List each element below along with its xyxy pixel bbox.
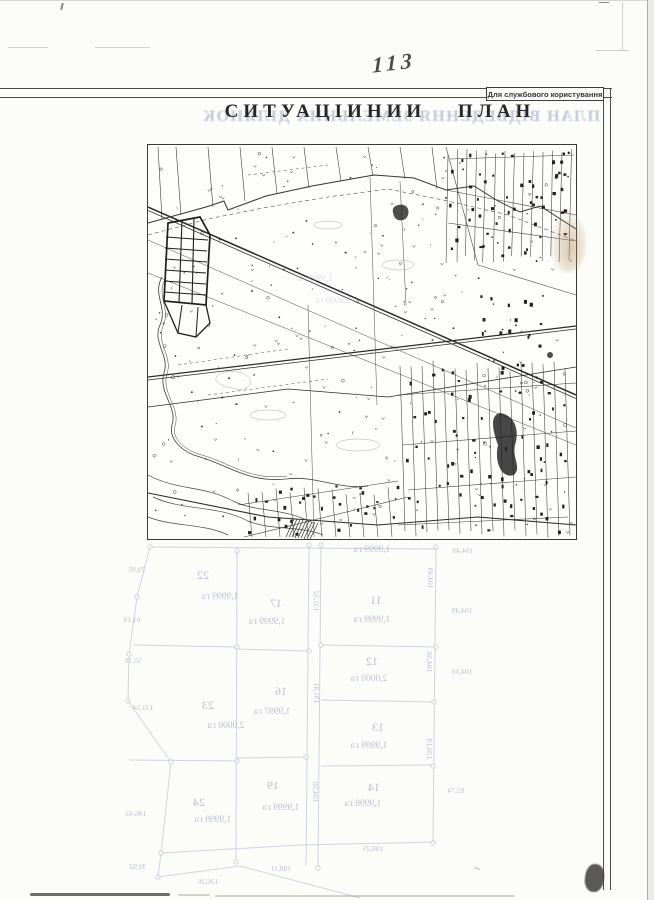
- page-title: СИТУАЦІИНИИ ПЛАН: [180, 101, 580, 123]
- map-canvas: [148, 145, 576, 539]
- pond: [493, 413, 517, 476]
- bleed-parcel-number: 22: [197, 568, 209, 582]
- classification-stamp: Для службового користування: [486, 87, 604, 101]
- bleed-parcel-number: 24: [193, 795, 205, 809]
- bleed-measurement: 104,50: [451, 667, 472, 676]
- scan-speck: [599, 2, 609, 3]
- bleed-parcel-area: 1,9999 га: [201, 592, 238, 602]
- page-frame-outer: [610, 88, 611, 890]
- bleed-parcel-area: 1,9999 га: [248, 617, 285, 627]
- bleed-measurement: 104,49: [426, 567, 435, 588]
- bleed-measurement: 120,19: [425, 738, 434, 759]
- bleed-parcel-number: 13: [372, 720, 384, 734]
- bleed-parcel-number: 19: [267, 778, 279, 792]
- scanned-document-page: ПЛАН ВІДВЕДЕННЯ ЗЕМЕЛЬНИХ ДІЛЯНОК 221,99…: [0, 0, 654, 900]
- bleed-parcel-area: 1,9999 га: [350, 741, 387, 751]
- scan-bottom-smudge: [178, 894, 210, 896]
- scan-top-edge: [0, 0, 654, 1]
- bleed-parcel-area: 1,9998 га: [344, 799, 381, 809]
- situational-map: 1,9999 га 2,0000 га: [147, 144, 577, 540]
- bleed-measurement: 104,49: [451, 606, 472, 615]
- bleed-measurement: 131,54: [132, 703, 153, 712]
- scan-artifact-line: [596, 50, 629, 51]
- bleed-measurement: 126,26: [197, 877, 218, 886]
- bleed-parcel-number: 12: [366, 654, 378, 668]
- scan-page-edge: [647, 0, 654, 900]
- bleed-measurement: 61,19: [123, 615, 140, 624]
- bleed-parcel-number: 11: [370, 593, 382, 607]
- bleed-measurement: 55,10: [124, 656, 141, 665]
- bleedthrough-fragment: 1,9999 га: [298, 273, 333, 283]
- scan-bottom-smudge: [30, 893, 170, 896]
- scan-bottom-smudge: [215, 895, 515, 897]
- bleed-measurement: 79,95: [128, 565, 145, 574]
- bleed-parcel-number: 23: [202, 698, 214, 712]
- bleed-parcel-number: 16: [275, 684, 287, 698]
- bleed-measurement: 131,52: [312, 590, 321, 611]
- scan-artifact-line: [8, 47, 48, 48]
- bleed-parcel-area: 1,9999 га: [353, 615, 390, 625]
- bleed-measurement: 104,50: [311, 781, 320, 802]
- bleed-parcel-area: 2,0000 га: [207, 721, 244, 731]
- handwritten-page-number: 113: [372, 47, 416, 78]
- scan-artifact-line: [622, 2, 623, 50]
- bleed-parcel-number: 14: [368, 780, 380, 794]
- bleed-measurement: 82,74: [447, 786, 464, 795]
- page-frame-inner: [603, 88, 604, 890]
- scan-artifact-line: [95, 47, 150, 48]
- bleedthrough-fragment: 2,0000 га: [316, 295, 351, 305]
- bleed-parcel-area: 1,9999 га: [262, 803, 299, 813]
- bleed-measurement: 191,81: [312, 682, 321, 703]
- bleed-parcel-area: 2,0000 га: [350, 674, 387, 684]
- bleed-measurement: 198,11: [271, 864, 292, 873]
- bleed-parcel-number: 17: [270, 596, 282, 610]
- bleed-measurement: 104,49: [452, 546, 473, 555]
- bleed-measurement: 39,92: [129, 862, 146, 871]
- bleed-measurement: 104,50: [425, 651, 434, 672]
- bleed-measurement: 198,25: [362, 844, 383, 853]
- bleed-parcel-area: 1,9998 га: [194, 815, 231, 825]
- bleed-measurement: 146,43: [125, 809, 146, 818]
- paper-stain: [550, 212, 586, 272]
- bleed-parcel-area: 1,9997 га: [253, 707, 290, 717]
- bleed-parcel-area: 1,9999 га: [353, 545, 390, 555]
